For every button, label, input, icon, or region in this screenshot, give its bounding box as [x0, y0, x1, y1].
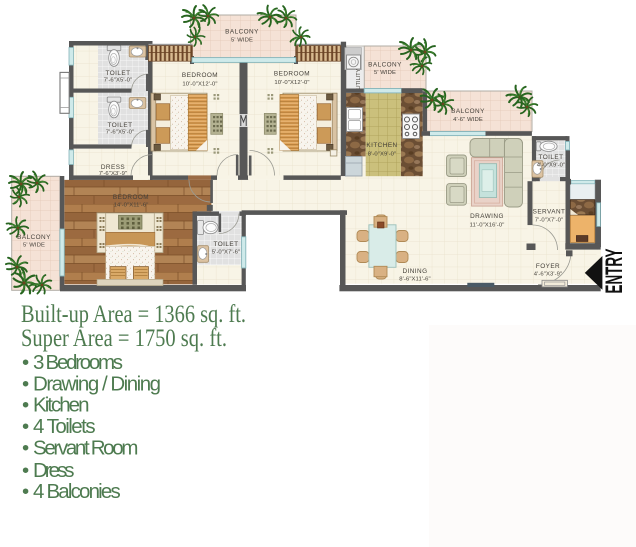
svg-text:7'-6"X5'-0": 7'-6"X5'-0": [106, 130, 135, 136]
svg-text:TOILET: TOILET: [106, 70, 131, 77]
svg-text:KITCHEN: KITCHEN: [366, 142, 397, 149]
svg-text:Servant Room: Servant Room: [33, 437, 138, 460]
svg-text:4'-6" WIDE: 4'-6" WIDE: [453, 117, 483, 123]
svg-text:14'-0"X11'-6": 14'-0"X11'-6": [114, 202, 149, 208]
svg-text:7'-0"X7'-0": 7'-0"X7'-0": [535, 218, 564, 224]
svg-text:Kitchen: Kitchen: [33, 394, 90, 417]
svg-text:FOYER: FOYER: [536, 263, 560, 270]
svg-text:TOILET: TOILET: [539, 154, 564, 161]
svg-text:BEDROOM: BEDROOM: [182, 72, 218, 79]
svg-text:5' WIDE: 5' WIDE: [231, 38, 253, 44]
svg-text:DRESS: DRESS: [101, 164, 125, 171]
svg-text:8'-0"X9'-0": 8'-0"X9'-0": [368, 152, 397, 158]
svg-text:11'-0"X16'-0": 11'-0"X16'-0": [470, 223, 505, 229]
svg-text:7'-6"X3'-9": 7'-6"X3'-9": [99, 171, 128, 177]
svg-text:•: •: [22, 480, 29, 503]
svg-text:5'-0"X7'-6": 5'-0"X7'-6": [212, 250, 241, 256]
svg-text:•: •: [22, 415, 29, 438]
svg-text:ENTRY: ENTRY: [601, 249, 628, 294]
svg-text:BEDROOM: BEDROOM: [274, 71, 310, 78]
svg-text:4 Toilets: 4 Toilets: [33, 415, 96, 438]
svg-text:DRAWING: DRAWING: [470, 213, 504, 220]
svg-text:•: •: [22, 437, 29, 460]
svg-text:10'-0"X12'-0": 10'-0"X12'-0": [274, 80, 309, 86]
svg-text:8'-6"X11'-6": 8'-6"X11'-6": [399, 277, 430, 283]
svg-text:Super Area = 1750 sq. ft.: Super Area = 1750 sq. ft.: [21, 325, 227, 352]
svg-text:•: •: [22, 459, 29, 482]
svg-text:BALCONY: BALCONY: [225, 29, 259, 36]
svg-text:10'-0"X12'-0": 10'-0"X12'-0": [182, 82, 217, 88]
svg-text:TOILET: TOILET: [214, 241, 239, 248]
svg-text:Built-up Area = 1366 sq. ft.: Built-up Area = 1366 sq. ft.: [21, 301, 246, 328]
svg-text:BALCONY: BALCONY: [451, 108, 485, 115]
svg-text:5' WIDE: 5' WIDE: [23, 243, 45, 249]
svg-text:5' WIDE: 5' WIDE: [374, 70, 396, 76]
svg-text:DINING: DINING: [402, 268, 427, 275]
svg-text:4 Balconies: 4 Balconies: [33, 480, 121, 503]
svg-text:TOILET: TOILET: [108, 122, 133, 129]
svg-text:•: •: [22, 351, 29, 374]
svg-text:Dress: Dress: [33, 459, 75, 482]
svg-text:SERVANT: SERVANT: [533, 209, 566, 216]
svg-text:UTILITY: UTILITY: [356, 68, 362, 89]
svg-text:BALCONY: BALCONY: [368, 62, 402, 69]
svg-text:BALCONY: BALCONY: [17, 234, 51, 241]
svg-text:BEDROOM: BEDROOM: [113, 194, 149, 201]
svg-text:3 Bedrooms: 3 Bedrooms: [33, 351, 123, 374]
svg-text:•: •: [22, 394, 29, 417]
svg-text:•: •: [22, 373, 29, 396]
svg-text:7'-6"X5'-0": 7'-6"X5'-0": [104, 78, 133, 84]
svg-text:4'-0"X9'-0": 4'-0"X9'-0": [537, 163, 566, 169]
svg-text:Drawing / Dining: Drawing / Dining: [33, 373, 161, 396]
svg-text:4'-6"X3'-9": 4'-6"X3'-9": [534, 272, 563, 278]
